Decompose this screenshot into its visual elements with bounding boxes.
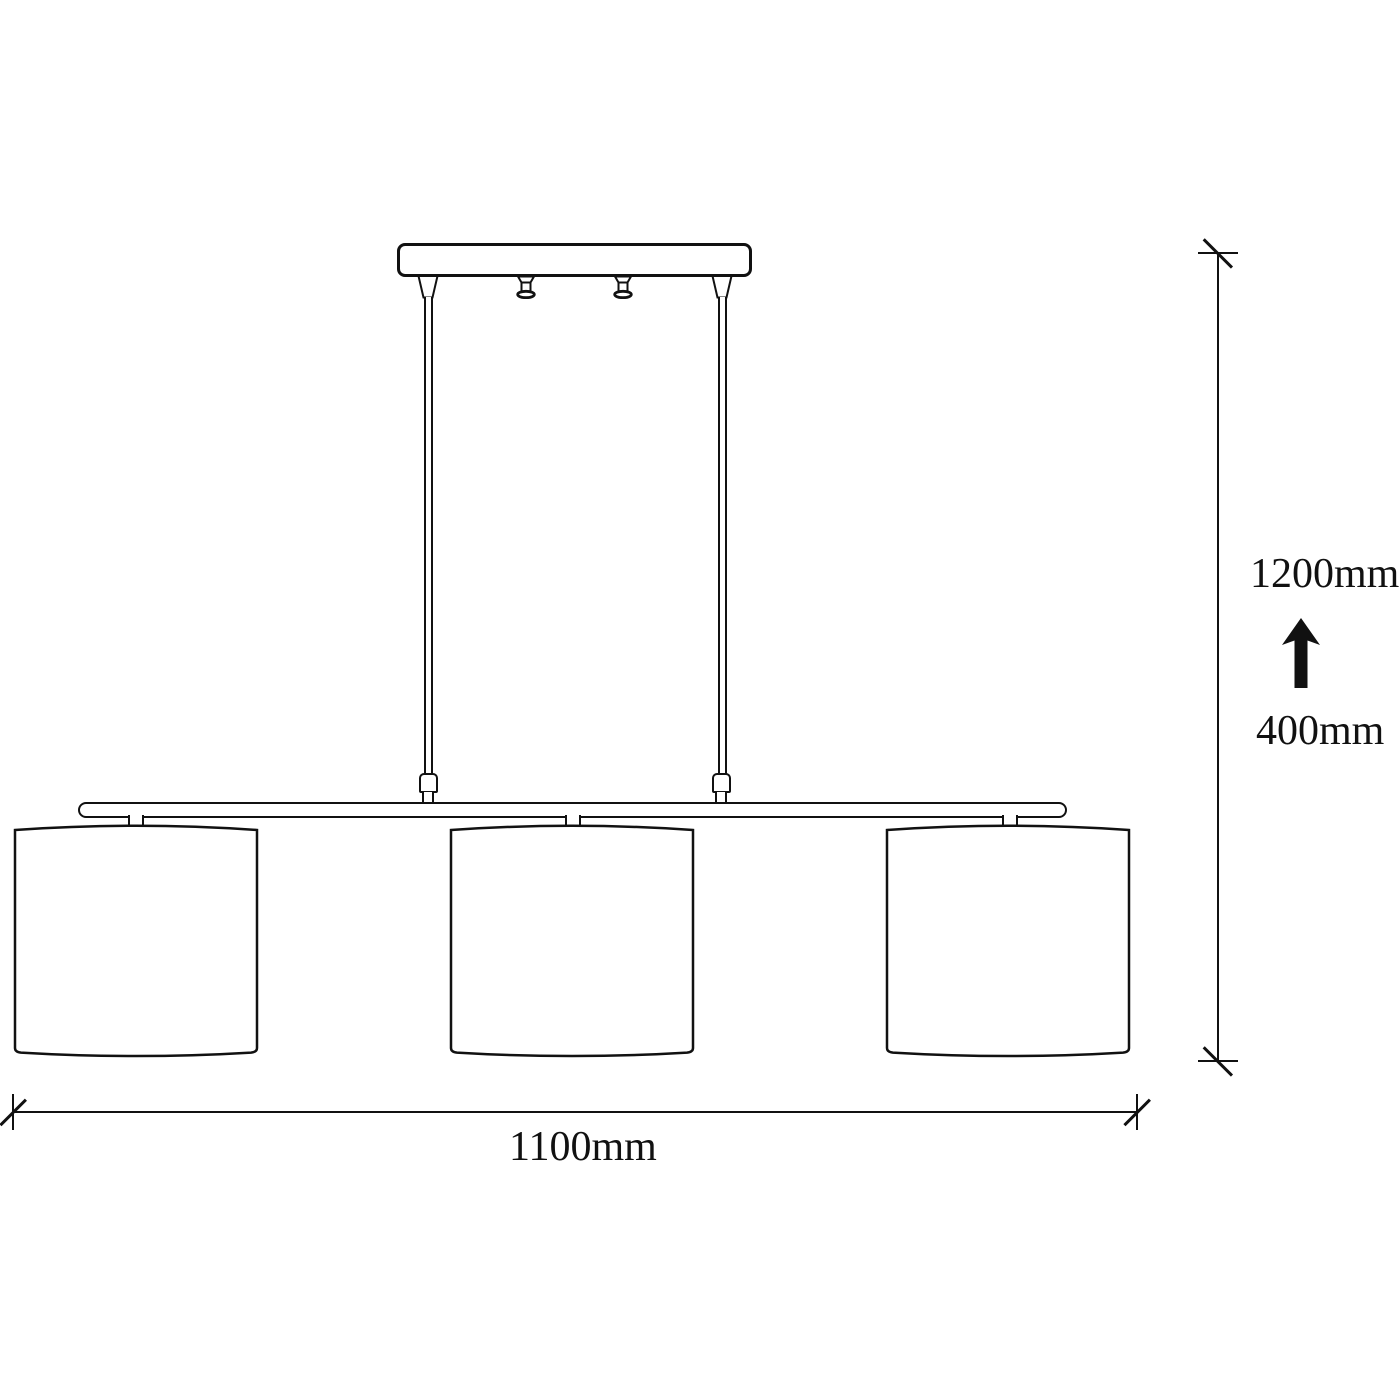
lampshade-left (13, 820, 259, 1061)
dimension-label-min-height: 400mm (1256, 710, 1384, 752)
cable-grip-left (417, 275, 439, 299)
mounting-screw-right (613, 276, 633, 299)
up-arrow-icon (1282, 618, 1320, 688)
dimension-diagram: 1200mm 400mm 1100mm (0, 0, 1400, 1400)
cable-ferrule-right (712, 773, 731, 793)
dimension-line-height (1217, 253, 1219, 1061)
dimension-label-width: 1100mm (509, 1126, 657, 1168)
dimension-line-width (13, 1111, 1137, 1113)
ceiling-mount-plate (397, 243, 752, 277)
cable-ferrule-left (419, 773, 438, 793)
cable-grip-right (711, 275, 733, 299)
lampshade-middle (449, 820, 695, 1061)
suspension-cable-left (424, 297, 433, 774)
suspension-cable-right (718, 297, 727, 774)
mounting-screw-left (516, 276, 536, 299)
lampshade-right (885, 820, 1131, 1061)
dimension-label-max-height: 1200mm (1250, 553, 1399, 595)
